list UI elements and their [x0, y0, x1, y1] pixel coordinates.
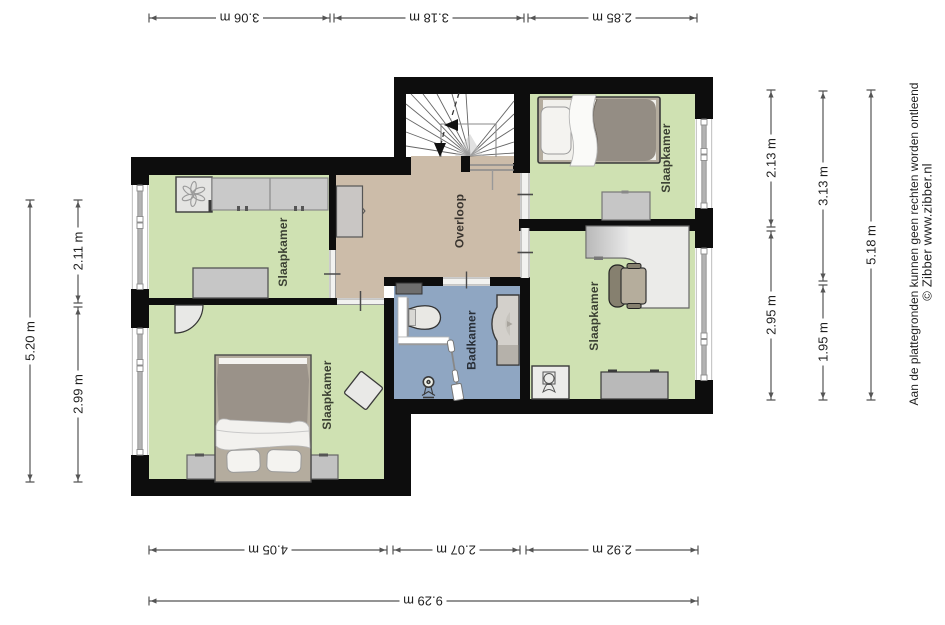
svg-text:2.99 m: 2.99 m	[71, 374, 86, 414]
svg-text:1.95 m: 1.95 m	[816, 322, 831, 362]
svg-text:4.05 m: 4.05 m	[248, 543, 288, 558]
svg-text:Badkamer: Badkamer	[465, 310, 479, 370]
svg-text:Overloop: Overloop	[453, 194, 467, 248]
svg-text:3.06 m: 3.06 m	[220, 11, 260, 26]
svg-text:Slaapkamer: Slaapkamer	[659, 123, 673, 193]
svg-text:2.07 m: 2.07 m	[436, 543, 476, 558]
svg-text:Slaapkamer: Slaapkamer	[320, 360, 334, 430]
svg-text:2.92 m: 2.92 m	[592, 543, 632, 558]
svg-text:3.18 m: 3.18 m	[409, 11, 449, 26]
svg-text:© Zibber www.zibber.nl: © Zibber www.zibber.nl	[920, 163, 935, 301]
svg-text:2.13 m: 2.13 m	[764, 138, 779, 178]
svg-text:2.11 m: 2.11 m	[71, 232, 86, 271]
svg-text:3.13 m: 3.13 m	[816, 166, 831, 206]
svg-text:9.29 m: 9.29 m	[403, 594, 443, 609]
svg-text:Slaapkamer: Slaapkamer	[587, 281, 601, 351]
svg-text:5.18 m: 5.18 m	[864, 225, 879, 265]
svg-text:2.85 m: 2.85 m	[592, 11, 632, 26]
svg-text:Slaapkamer: Slaapkamer	[276, 217, 290, 287]
svg-text:2.95 m: 2.95 m	[764, 295, 779, 335]
svg-text:5.20 m: 5.20 m	[23, 321, 38, 361]
